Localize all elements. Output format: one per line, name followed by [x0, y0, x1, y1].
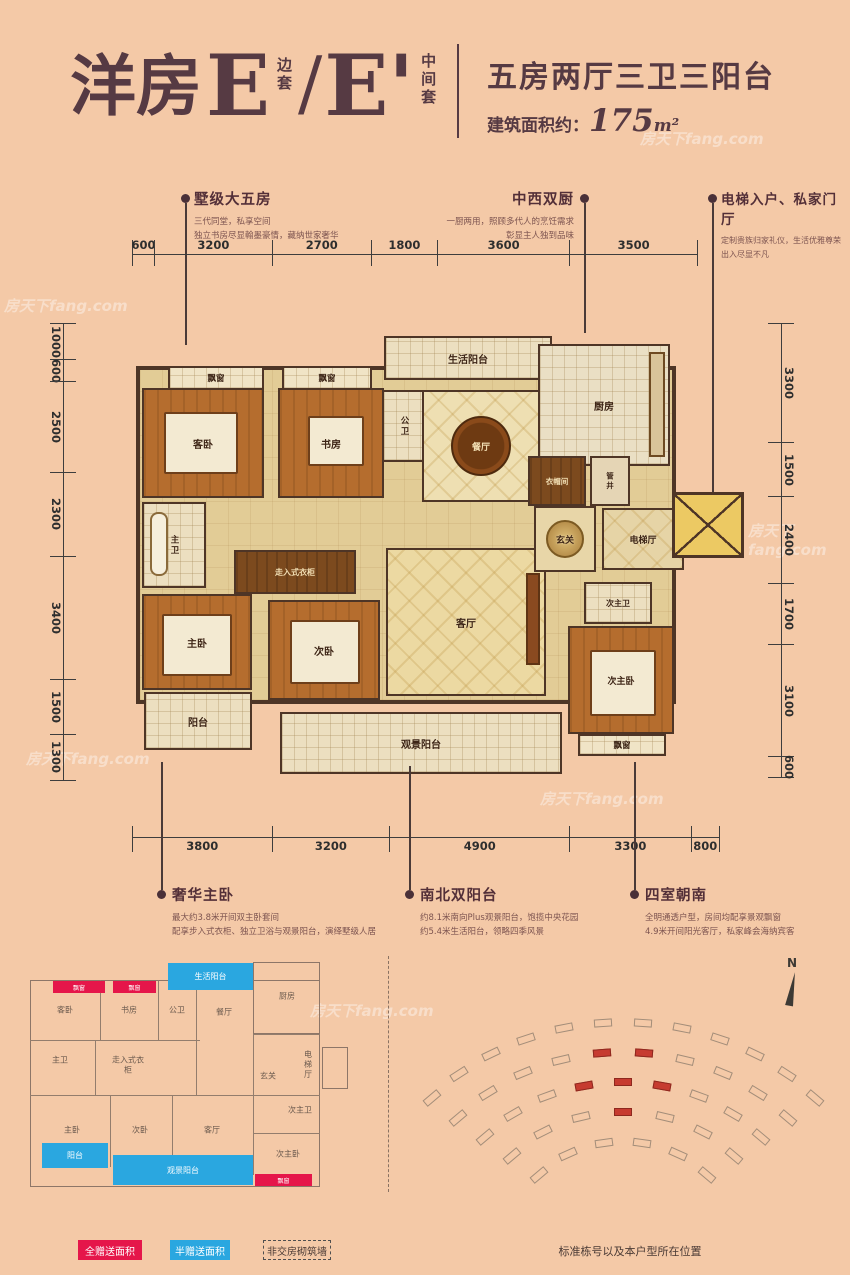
room-label: 飘窗	[207, 372, 224, 384]
mini-wall	[253, 1034, 254, 1175]
callout-bullet	[157, 890, 166, 899]
room-label: 生活阳台	[448, 351, 488, 366]
room-label: 餐厅	[472, 440, 490, 453]
room-guest-bedroom: 客卧	[142, 388, 264, 498]
title-zh: 洋房	[70, 42, 202, 131]
site-building	[672, 1023, 691, 1034]
mini-elevator-shaft	[322, 1047, 348, 1089]
mini-room-label: 次卧	[132, 1125, 148, 1136]
dim-segment: 1800	[371, 240, 437, 266]
room-label: 电梯厅	[629, 533, 656, 546]
room-label: 次主卧	[607, 674, 634, 687]
dim-label: 3800	[186, 839, 218, 853]
site-building	[449, 1109, 468, 1127]
dim-segment: 1000	[50, 323, 76, 359]
title-letter-e: E	[206, 42, 270, 130]
room-label: 客卧	[193, 436, 213, 451]
site-plan-buildings	[430, 950, 830, 1210]
mini-zone-bay-1: 飘窗	[53, 981, 105, 993]
tag-char: 边	[277, 56, 292, 74]
room-label: 衣帽间	[546, 476, 569, 487]
dim-segment: 600	[50, 359, 76, 381]
callout-title: 四室朝南	[645, 884, 795, 905]
mini-wall	[253, 1034, 320, 1035]
room-second-master-bath: 次主卫	[584, 582, 652, 624]
callout-desc-line: 约8.1米南向Plus观景阳台，饱揽中央花园	[420, 911, 578, 925]
callout-title: 墅级大五房	[194, 188, 339, 209]
site-building	[805, 1090, 824, 1108]
zone-label: 阳台	[67, 1150, 83, 1161]
mini-wall	[196, 980, 197, 1095]
site-building	[422, 1090, 441, 1108]
dining-table: 餐厅	[451, 416, 511, 476]
mini-room-label: 主卧	[64, 1125, 80, 1136]
room-second-master-bedroom: 次主卧	[568, 626, 674, 734]
site-building	[594, 1019, 612, 1028]
callout-desc-line: 定制贵族归家礼仪，生活优雅尊荣	[721, 234, 847, 248]
site-building	[476, 1128, 495, 1146]
callout-desc-line: 三代同堂，私享空间	[194, 215, 339, 229]
mini-wall	[95, 1040, 96, 1095]
mini-room-label: 次主卫	[288, 1105, 312, 1116]
room-label: 飘窗	[318, 372, 335, 384]
room-dining: 餐厅	[422, 390, 540, 502]
tag-char: 套	[421, 88, 436, 106]
site-building	[652, 1080, 671, 1091]
dim-label: 3200	[315, 839, 347, 853]
callout-desc: 全明通透户型，房间均配享景观飘窗 4.9米开间阳光客厅，私家峰会海纳宾客	[645, 911, 795, 940]
callout-bullet	[630, 890, 639, 899]
dim-chain-left: 100060025002300340015001300	[50, 323, 76, 781]
mini-zone-bay-2: 飘窗	[113, 981, 156, 993]
site-building	[777, 1066, 796, 1082]
room-label: 玄关	[556, 533, 574, 546]
area-label: 建筑面积约：	[487, 111, 589, 136]
room-label: 观景阳台	[401, 736, 441, 751]
legend-label: 半赠送面积	[175, 1243, 225, 1258]
room-label: 阳台	[188, 714, 208, 729]
site-building	[593, 1048, 612, 1057]
title-tag-zhong-jian-tao: 中 间 套	[421, 52, 436, 106]
dim-segment: 3300	[569, 826, 690, 852]
site-building	[713, 1066, 733, 1080]
dim-label: 1300	[49, 741, 63, 773]
dim-segment: 4900	[389, 826, 569, 852]
north-arrow: N	[782, 956, 802, 1006]
tag-char: 套	[277, 74, 292, 92]
site-building	[635, 1048, 654, 1057]
room-public-bath: 公卫	[382, 390, 426, 462]
mini-room-label: 书房	[121, 1005, 137, 1016]
room-label: 厨房	[594, 398, 614, 413]
room-life-balcony: 生活阳台	[384, 336, 552, 380]
area-value: 175	[589, 108, 654, 136]
room-label: 公卫	[398, 416, 410, 437]
callout-desc-line: 出入尽显不凡	[721, 248, 847, 262]
site-building	[633, 1138, 652, 1148]
legend-label: 全赠送面积	[85, 1243, 135, 1258]
dim-segment: 3200	[154, 240, 272, 266]
site-building	[481, 1047, 501, 1062]
floor-plan: 生活阳台 厨房 飘窗 飘窗 客卧 书房 公卫 餐厅 衣帽间 管井 主卫 走入式衣…	[132, 310, 772, 795]
callout-title: 奢华主卧	[172, 884, 376, 905]
title-slash: /	[298, 42, 322, 125]
dim-label: 2300	[49, 498, 63, 530]
callout-desc: 定制贵族归家礼仪，生活优雅尊荣 出入尽显不凡	[721, 234, 847, 261]
dim-label: 4900	[464, 839, 496, 853]
callout-desc: 约8.1米南向Plus观景阳台，饱揽中央花园 约5.4米生活阳台，领略四季风景	[420, 911, 578, 940]
sofa-furniture	[526, 573, 540, 665]
room-bay-window-1: 飘窗	[168, 366, 264, 390]
site-building	[698, 1166, 717, 1184]
callout-line	[409, 766, 411, 890]
site-building	[778, 1109, 797, 1127]
zone-label: 飘窗	[128, 983, 140, 992]
dim-label: 1800	[388, 238, 420, 252]
room-cloakroom: 衣帽间	[528, 456, 586, 506]
dim-label: 2700	[306, 238, 338, 252]
section-divider	[388, 956, 389, 1192]
legend-label: 非交房砌筑墙	[267, 1243, 327, 1258]
title-letter-e-prime: E'	[324, 42, 414, 130]
site-building	[745, 1047, 765, 1062]
room-foyer: 玄关	[534, 506, 596, 572]
site-plan: N	[430, 950, 830, 1210]
site-building	[529, 1166, 548, 1184]
dim-segment: 600	[132, 240, 154, 266]
room-kitchen: 厨房	[538, 344, 670, 466]
callout-bottom-1: 奢华主卧 最大约3.8米开间双主卧套间 配享步入式衣柜、独立卫浴与观景阳台，演绎…	[172, 884, 376, 940]
spec-title: 五房两厅三卫三阳台	[487, 52, 775, 96]
room-bay-window-3: 飘窗	[578, 734, 666, 756]
dim-segment: 2700	[272, 240, 371, 266]
mini-room-label: 客卧	[57, 1005, 73, 1016]
watermark: 房天下fang.com	[4, 295, 128, 316]
room-label: 书房	[321, 436, 341, 451]
site-building	[614, 1108, 632, 1116]
room-view-balcony: 观景阳台	[280, 712, 562, 774]
dim-segment: 2500	[50, 381, 76, 472]
mini-room-label: 主卫	[52, 1055, 68, 1066]
dim-label: 1700	[782, 598, 796, 630]
site-building	[751, 1128, 770, 1146]
zone-label: 飘窗	[73, 983, 85, 992]
mini-wall	[110, 1095, 111, 1167]
callout-desc-line: 约5.4米生活阳台，领略四季风景	[420, 925, 578, 939]
site-building	[634, 1019, 652, 1028]
site-building	[537, 1089, 557, 1103]
elevator-shaft	[672, 492, 744, 558]
site-building	[689, 1089, 709, 1103]
legend-full-gift: 全赠送面积	[78, 1240, 142, 1260]
room-bay-window-2: 飘窗	[282, 366, 372, 390]
area-unit: m²	[654, 116, 679, 136]
mini-room-label: 玄关	[260, 1071, 276, 1082]
legend-non-delivery-wall: 非交房砌筑墙	[263, 1240, 331, 1260]
dim-label: 3600	[488, 238, 520, 252]
dim-segment: 3500	[569, 240, 698, 266]
mini-zone-balcony: 阳台	[42, 1143, 108, 1168]
dim-label: 3500	[618, 238, 650, 252]
dim-segment: 3200	[272, 826, 390, 852]
site-building	[558, 1147, 578, 1162]
mini-zone-life-balcony: 生活阳台	[168, 963, 253, 990]
dim-label: 3100	[782, 685, 796, 717]
mini-zone-view-balcony: 观景阳台	[113, 1155, 253, 1185]
zone-label: 飘窗	[277, 1176, 289, 1185]
room-walkin-closet: 走入式衣柜	[234, 550, 356, 594]
callout-bullet	[181, 194, 190, 203]
site-building	[693, 1124, 713, 1139]
site-building	[614, 1078, 632, 1086]
dim-segment: 1500	[50, 679, 76, 734]
room-balcony: 阳台	[144, 692, 252, 750]
site-building	[517, 1032, 537, 1045]
dim-label: 3200	[197, 238, 229, 252]
dim-segment: 3800	[132, 826, 272, 852]
dim-label: 800	[693, 839, 717, 853]
site-building	[572, 1111, 591, 1123]
site-building	[513, 1066, 533, 1080]
room-label: 客厅	[456, 615, 476, 630]
dim-label: 2400	[782, 524, 796, 556]
north-label: N	[782, 956, 802, 970]
callout-top-1: 墅级大五房 三代同堂，私享空间 独立书房尽显翰墨豪情，藏纳世家奢华	[194, 188, 339, 244]
dim-chain-top: 60032002700180036003500	[132, 240, 698, 266]
dim-segment: 2300	[50, 472, 76, 556]
room-shaft: 管井	[590, 456, 630, 506]
callout-bottom-2: 南北双阳台 约8.1米南向Plus观景阳台，饱揽中央花园 约5.4米生活阳台，领…	[420, 884, 578, 940]
mini-room-label: 走入式衣柜	[111, 1055, 145, 1074]
site-plan-caption: 标准栋号以及本户型所在位置	[430, 1243, 830, 1259]
mini-room-label: 电梯厅	[303, 1050, 314, 1080]
dim-label: 2500	[49, 411, 63, 443]
zone-label: 观景阳台	[167, 1165, 199, 1176]
mini-plan: 生活阳台 飘窗 飘窗 阳台 观景阳台 飘窗 客卧 书房 公卫 餐厅 厨房 主卫 …	[28, 958, 363, 1213]
site-building	[748, 1085, 768, 1101]
mini-zone-bay-3: 飘窗	[255, 1174, 312, 1186]
callout-bullet	[405, 890, 414, 899]
site-building	[668, 1147, 688, 1162]
poster: 房天下fang.com 房天下fang.com 房天下fang.com 房天下f…	[0, 0, 850, 1275]
mini-room-label: 次主卧	[276, 1149, 300, 1160]
callout-desc-line: 配享步入式衣柜、独立卫浴与观景阳台，演绎墅级人居	[172, 925, 376, 939]
callout-top-3: 电梯入户、私家门厅 定制贵族归家礼仪，生活优雅尊荣 出入尽显不凡	[721, 188, 847, 261]
site-building	[552, 1054, 571, 1066]
dim-segment: 3600	[437, 240, 569, 266]
site-building	[725, 1147, 744, 1165]
callout-bottom-3: 四室朝南 全明通透户型，房间均配享景观飘窗 4.9米开间阳光客厅，私家峰会海纳宾…	[645, 884, 795, 940]
header-left: 洋房 E 边 套 / E' 中 间 套	[70, 42, 436, 131]
dim-label: 600	[782, 755, 796, 779]
mini-room-label: 公卫	[169, 1005, 185, 1016]
dim-label: 600	[132, 238, 156, 252]
tag-char: 中	[421, 52, 436, 70]
mini-wall	[158, 980, 159, 1040]
dim-label: 1500	[49, 691, 63, 723]
room-living: 客厅	[386, 548, 546, 696]
mini-room-label: 客厅	[204, 1125, 220, 1136]
room-label: 主卧	[187, 635, 207, 650]
callout-desc-line: 全明通透户型，房间均配享景观飘窗	[645, 911, 795, 925]
legend-half-gift: 半赠送面积	[170, 1240, 230, 1260]
mini-room-label: 厨房	[279, 991, 295, 1002]
room-label: 管井	[605, 472, 616, 491]
north-needle	[785, 972, 799, 1007]
bathtub	[150, 512, 168, 576]
dim-segment: 800	[691, 826, 720, 852]
mini-wall	[30, 1095, 320, 1096]
dim-label: 3400	[49, 602, 63, 634]
site-building	[502, 1147, 521, 1165]
callout-line	[634, 762, 636, 890]
zone-label: 生活阳台	[195, 971, 227, 982]
dim-chain-bottom: 3800320049003300800	[132, 826, 720, 852]
site-building	[478, 1085, 498, 1101]
room-study: 书房	[278, 388, 384, 498]
dim-label: 1500	[782, 454, 796, 486]
callout-bullet	[580, 194, 589, 203]
callout-title: 电梯入户、私家门厅	[721, 188, 847, 228]
callout-desc-line: 一厨两用，照顾多代人的烹饪需求	[446, 215, 574, 229]
callout-desc-line: 最大约3.8米开间双主卧套间	[172, 911, 376, 925]
dim-label: 1000	[49, 326, 63, 358]
site-building	[554, 1023, 573, 1034]
room-second-bedroom: 次卧	[268, 600, 380, 700]
site-building	[675, 1054, 694, 1066]
site-building	[655, 1111, 674, 1123]
site-building	[710, 1032, 730, 1045]
site-building	[723, 1106, 743, 1122]
room-label: 次主卫	[606, 598, 630, 609]
site-building	[594, 1138, 613, 1148]
callout-desc: 最大约3.8米开间双主卧套间 配享步入式衣柜、独立卫浴与观景阳台，演绎墅级人居	[172, 911, 376, 940]
callout-bullet	[708, 194, 717, 203]
room-label: 次卧	[314, 643, 334, 658]
site-building	[574, 1080, 593, 1091]
mini-wall	[30, 1040, 200, 1041]
site-building	[533, 1124, 553, 1139]
callout-line	[161, 762, 163, 890]
room-master-bedroom: 主卧	[142, 594, 252, 690]
mini-wall	[253, 1133, 320, 1134]
dim-label: 3300	[614, 839, 646, 853]
kitchen-counter	[649, 352, 665, 457]
room-label: 走入式衣柜	[275, 567, 315, 578]
callout-top-2: 中西双厨 一厨两用，照顾多代人的烹饪需求 彰显主人独到品味	[446, 188, 574, 244]
callout-title: 中西双厨	[446, 188, 574, 209]
site-building	[450, 1066, 469, 1082]
room-master-bath: 主卫	[142, 502, 206, 588]
title-tag-bian-tao: 边 套	[277, 56, 292, 92]
dim-label: 600	[49, 359, 63, 383]
dim-segment: 3400	[50, 556, 76, 680]
callout-title: 南北双阳台	[420, 884, 578, 905]
dim-label: 3300	[782, 367, 796, 399]
header-divider	[457, 44, 459, 138]
mini-room-label: 餐厅	[216, 1007, 232, 1018]
room-label: 主卫	[168, 535, 180, 556]
header-right: 五房两厅三卫三阳台 建筑面积约： 175 m²	[487, 52, 775, 136]
room-label: 飘窗	[613, 739, 630, 751]
tag-char: 间	[421, 70, 436, 88]
site-building	[504, 1106, 524, 1122]
callout-desc-line: 4.9米开间阳光客厅，私家峰会海纳宾客	[645, 925, 795, 939]
dim-segment: 1300	[50, 734, 76, 781]
